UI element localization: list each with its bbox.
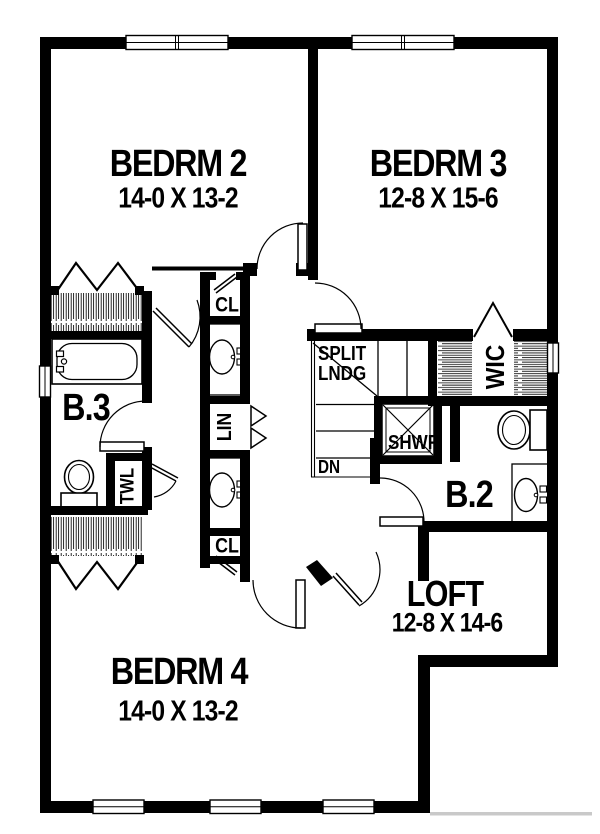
bifold-doors-closet-bottom <box>57 560 139 589</box>
door-wic <box>474 303 512 337</box>
window <box>40 366 51 397</box>
room-label-bedrm3: BEDRM 3 <box>370 145 506 183</box>
closet-rod-hatch-top <box>51 293 142 332</box>
toilet-b3 <box>61 461 97 511</box>
window <box>548 343 559 373</box>
door-loft <box>333 552 380 606</box>
label-closet-bottom: CL <box>215 536 239 557</box>
door-b3 <box>153 300 200 347</box>
label-wic: WIC <box>482 345 508 389</box>
bifold-doors-closet-top <box>57 263 139 291</box>
sink-vanity-upper <box>208 324 244 395</box>
window <box>352 36 454 50</box>
room-dims-bedrm3: 12-8 X 15-6 <box>378 185 497 214</box>
floor-plan: BEDRM 2 14-0 X 13-2 BEDRM 3 12-8 X 15-6 … <box>0 0 600 834</box>
label-towel: TWL <box>119 468 138 504</box>
bathtub <box>52 339 142 384</box>
closet-rod-hatch-bottom <box>51 517 142 556</box>
door-b2 <box>380 478 424 526</box>
floor-edge-shadow <box>430 812 592 816</box>
label-closet-top: CL <box>215 295 239 316</box>
wic-rod-hatch-left <box>438 341 472 397</box>
door-twl <box>150 464 178 497</box>
toilet-b2 <box>498 410 547 450</box>
doors <box>57 223 512 628</box>
window <box>323 800 374 814</box>
room-label-bedrm2: BEDRM 2 <box>110 145 246 183</box>
door-bedrm4 <box>253 580 305 628</box>
window <box>126 36 228 50</box>
bifold-doors-linen <box>251 406 266 448</box>
room-label-bath2: B.2 <box>445 476 493 514</box>
wic-rod-hatch-right <box>514 341 547 397</box>
sink-vanity-lower <box>208 458 244 529</box>
door-bedrm3 <box>315 283 362 333</box>
window <box>210 800 261 814</box>
label-linen: LIN <box>215 413 235 441</box>
door-bedrm2 <box>257 223 307 270</box>
label-split-landing-2: LNDG <box>318 364 366 384</box>
room-label-bedrm4: BEDRM 4 <box>111 653 247 691</box>
label-split-landing-1: SPLIT <box>318 344 366 364</box>
label-shower: SHWR <box>388 433 440 453</box>
door-cl-top <box>214 274 237 293</box>
room-dims-loft: 12-8 X 14-6 <box>392 610 503 637</box>
label-down: DN <box>318 458 340 476</box>
room-label-bath3: B.3 <box>62 389 110 427</box>
window <box>93 800 144 814</box>
room-dims-bedrm4: 14-0 X 13-2 <box>118 698 237 727</box>
room-dims-bedrm2: 14-0 X 13-2 <box>118 185 237 214</box>
sink-vanity-b2 <box>512 464 548 526</box>
